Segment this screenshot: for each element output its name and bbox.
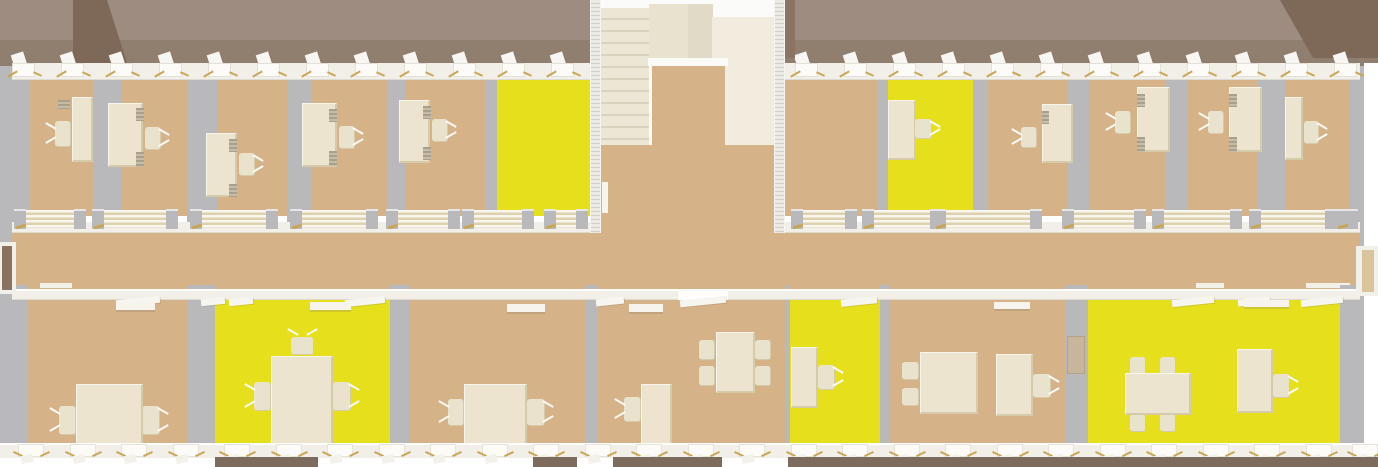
office-chair bbox=[333, 382, 351, 411]
office-t7-floor[interactable] bbox=[785, 78, 877, 216]
cabinet bbox=[1067, 336, 1085, 374]
corridor-door-stack[interactable] bbox=[92, 210, 178, 228]
stairwell-opening bbox=[652, 66, 725, 145]
partition-wall bbox=[12, 66, 30, 222]
corridor-floor[interactable] bbox=[12, 233, 1360, 289]
corridor-bottom-wall bbox=[12, 289, 678, 300]
desktop-pc bbox=[1229, 137, 1237, 152]
desk bbox=[888, 100, 916, 160]
right-exit-door[interactable] bbox=[1362, 250, 1374, 292]
office-chair bbox=[254, 382, 271, 411]
wall-shelf bbox=[310, 302, 351, 310]
window-open-pane bbox=[20, 454, 33, 464]
stairwell-side-wall bbox=[774, 0, 785, 233]
partition-wall bbox=[877, 66, 888, 222]
desktop-pc bbox=[329, 109, 337, 122]
office-chair bbox=[527, 399, 545, 426]
window-open-pane bbox=[484, 454, 497, 464]
office-chair bbox=[915, 119, 932, 139]
table bbox=[271, 356, 333, 448]
office-t6-highlighted-floor[interactable] bbox=[497, 78, 590, 216]
partition-wall bbox=[585, 285, 598, 445]
meeting-chair bbox=[699, 366, 715, 386]
stairwell-wall-slab bbox=[602, 182, 608, 213]
partition-wall bbox=[485, 66, 497, 222]
desktop-pc bbox=[58, 100, 70, 109]
door-frame-cap bbox=[522, 209, 534, 229]
table bbox=[1125, 373, 1191, 415]
office-chair bbox=[1021, 127, 1037, 148]
meeting-b7-highlighted-floor[interactable] bbox=[1088, 300, 1340, 443]
window-open-pane bbox=[432, 454, 445, 464]
stairwell-edge bbox=[648, 58, 728, 66]
office-chair bbox=[339, 126, 355, 149]
partition-wall bbox=[12, 285, 28, 445]
office-chair bbox=[59, 406, 76, 435]
desktop-pc bbox=[229, 139, 237, 152]
door-frame-cap bbox=[1134, 209, 1146, 229]
table bbox=[464, 384, 527, 446]
meeting-chair bbox=[902, 388, 919, 406]
corridor-door-stack[interactable] bbox=[862, 210, 942, 228]
table bbox=[716, 332, 755, 393]
desk bbox=[791, 347, 818, 408]
desktop-pc bbox=[1137, 137, 1145, 152]
partition-wall bbox=[390, 285, 410, 445]
office-chair bbox=[291, 337, 314, 355]
door-leaf-slab bbox=[1196, 283, 1224, 288]
meeting-chair bbox=[1160, 414, 1176, 432]
corridor-door-stack[interactable] bbox=[934, 210, 1042, 228]
door-frame-cap bbox=[166, 209, 178, 229]
stairwell-upper-wall bbox=[688, 4, 713, 61]
desk bbox=[1237, 349, 1273, 413]
office-chair bbox=[145, 127, 161, 150]
office-chair bbox=[1208, 111, 1224, 134]
door-frame-cap bbox=[845, 209, 857, 229]
office-chair bbox=[1033, 374, 1051, 398]
office-chair bbox=[55, 121, 71, 147]
corridor-door-stack[interactable] bbox=[14, 210, 86, 228]
corridor-door-stack[interactable] bbox=[1336, 210, 1358, 228]
corridor-door-stack[interactable] bbox=[190, 210, 278, 228]
partition-wall bbox=[1340, 285, 1360, 445]
window-open-pane bbox=[329, 454, 342, 464]
desktop-pc bbox=[423, 147, 431, 160]
wall-shelf bbox=[629, 304, 663, 312]
door-frame-cap bbox=[1030, 209, 1042, 229]
floorplan-3d-view[interactable] bbox=[0, 0, 1378, 467]
wall-shelf bbox=[1244, 300, 1289, 307]
window-open-pane bbox=[72, 454, 85, 464]
desk bbox=[72, 97, 93, 162]
window-open-pane bbox=[741, 454, 754, 464]
corridor-door-stack[interactable] bbox=[386, 210, 460, 228]
office-chair bbox=[239, 153, 255, 176]
corridor-door-stack[interactable] bbox=[544, 210, 588, 228]
partition-wall bbox=[1350, 66, 1360, 222]
window-open-pane bbox=[123, 454, 136, 464]
door-frame-cap bbox=[576, 209, 588, 229]
desktop-pc bbox=[136, 108, 144, 121]
table bbox=[920, 352, 978, 414]
corridor-door-stack[interactable] bbox=[1249, 210, 1337, 228]
office-chair bbox=[1115, 111, 1131, 134]
corridor-door-stack[interactable] bbox=[1062, 210, 1146, 228]
office-chair bbox=[1304, 121, 1319, 144]
ground-strip bbox=[788, 457, 1378, 467]
corridor-door-stack[interactable] bbox=[462, 210, 534, 228]
corridor-door-stack[interactable] bbox=[290, 210, 378, 228]
window-open-pane bbox=[381, 454, 394, 464]
desktop-pc bbox=[1042, 111, 1049, 124]
corridor-door-stack[interactable] bbox=[1152, 210, 1242, 228]
office-chair bbox=[818, 365, 835, 390]
wall-shelf bbox=[507, 304, 545, 312]
stairwell-lobby-floor[interactable] bbox=[601, 145, 774, 233]
desktop-pc bbox=[329, 151, 337, 166]
partition-wall bbox=[188, 285, 215, 445]
wall-shelf bbox=[994, 302, 1030, 309]
door-frame-cap bbox=[366, 209, 378, 229]
meeting-chair bbox=[755, 340, 771, 360]
meeting-chair bbox=[1130, 414, 1146, 432]
partition-wall bbox=[973, 66, 988, 222]
wall-shelf bbox=[116, 302, 155, 310]
door-frame-cap bbox=[1230, 209, 1242, 229]
office-chair bbox=[142, 406, 160, 435]
desk bbox=[996, 354, 1033, 416]
desk bbox=[1285, 97, 1303, 160]
roof-dark-corner bbox=[785, 0, 795, 58]
desktop-pc bbox=[229, 184, 237, 197]
ground-strip bbox=[533, 457, 577, 467]
partition-wall bbox=[880, 285, 890, 445]
corridor-door-stack[interactable] bbox=[791, 210, 857, 228]
window-open-pane bbox=[587, 454, 600, 464]
desktop-pc bbox=[136, 152, 144, 167]
ground-strip bbox=[613, 457, 722, 467]
door-frame-cap bbox=[266, 209, 278, 229]
meeting-chair bbox=[755, 366, 771, 386]
office-chair bbox=[1273, 374, 1290, 398]
door-frame-cap bbox=[74, 209, 86, 229]
desktop-pc bbox=[1229, 94, 1237, 107]
window-open-pane bbox=[175, 454, 188, 464]
left-exit-door[interactable] bbox=[2, 246, 12, 290]
stairwell-stairs-treads[interactable] bbox=[601, 8, 649, 145]
desk bbox=[641, 384, 672, 449]
desktop-pc bbox=[1137, 94, 1145, 107]
meeting-chair bbox=[699, 340, 715, 360]
door-leaf-slab bbox=[40, 283, 72, 288]
office-chair bbox=[448, 399, 464, 426]
table bbox=[76, 384, 143, 446]
ground-strip bbox=[215, 457, 318, 467]
stairwell-side-wall bbox=[590, 0, 601, 233]
office-chair bbox=[432, 119, 448, 142]
meeting-chair bbox=[902, 362, 919, 380]
office-chair bbox=[624, 397, 641, 422]
desktop-pc bbox=[423, 106, 431, 119]
door-frame-cap bbox=[448, 209, 460, 229]
